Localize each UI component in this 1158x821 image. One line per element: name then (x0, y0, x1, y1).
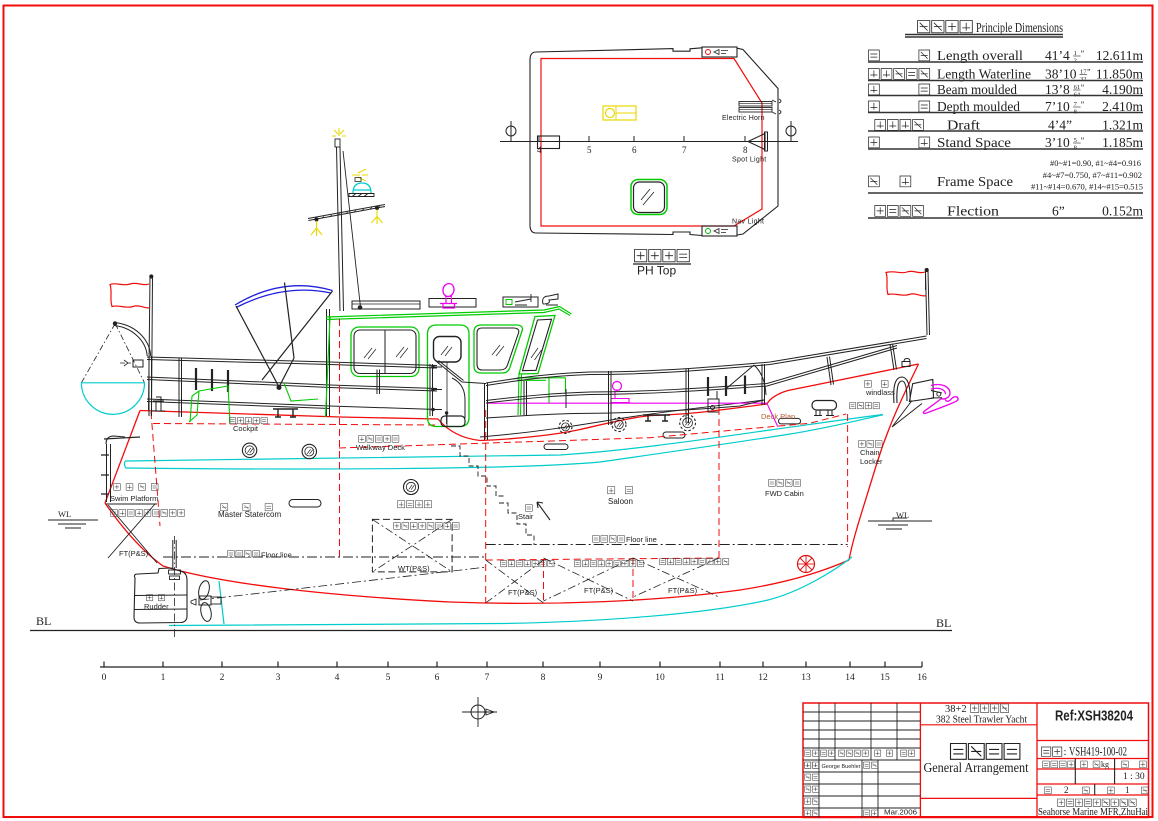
svg-text:Electric Horn: Electric Horn (722, 115, 765, 122)
svg-text:Ref:XSH38204: Ref:XSH38204 (1055, 709, 1133, 725)
svg-text:6: 6 (435, 673, 440, 683)
svg-text:Cockpit: Cockpit (233, 424, 259, 433)
svg-text:Floor line: Floor line (626, 535, 657, 544)
svg-text:8: 8 (1074, 145, 1077, 152)
svg-text:4: 4 (335, 673, 340, 683)
svg-text:”: ” (1081, 100, 1085, 109)
svg-text:#4~#7=0.750, #7~#11=0.902: #4~#7=0.750, #7~#11=0.902 (1043, 170, 1142, 180)
svg-text:2: 2 (1064, 785, 1069, 795)
svg-text:1.185m: 1.185m (1102, 135, 1143, 150)
svg-text:FWD Cabin: FWD Cabin (765, 489, 804, 498)
svg-text:FT(P&S): FT(P&S) (508, 588, 538, 597)
svg-text:WT(P&S): WT(P&S) (398, 564, 430, 573)
svg-text:Master Statercom: Master Statercom (218, 510, 281, 519)
svg-text:15: 15 (880, 673, 890, 683)
svg-text:1: 1 (161, 673, 166, 683)
svg-text:1: 1 (1125, 785, 1130, 795)
svg-text:Length Waterline: Length Waterline (937, 67, 1031, 82)
svg-text:3’10: 3’10 (1045, 135, 1070, 150)
svg-text:3: 3 (276, 673, 281, 683)
svg-text:Nav Light: Nav Light (732, 219, 764, 226)
svg-text:382 Steel Trawler Yacht: 382 Steel Trawler Yacht (936, 714, 1027, 726)
svg-text::: : (1064, 746, 1067, 758)
svg-text:BL: BL (36, 614, 51, 628)
svg-text:7: 7 (485, 673, 490, 683)
svg-text:11.850m: 11.850m (1096, 67, 1144, 82)
svg-text:BL: BL (936, 616, 951, 630)
svg-text:5: 5 (587, 145, 592, 155)
svg-text:0.152m: 0.152m (1102, 204, 1143, 219)
svg-text:”: ” (1081, 136, 1085, 145)
svg-text:Stand Space: Stand Space (937, 135, 1011, 150)
svg-text:Flection: Flection (947, 204, 999, 219)
svg-text:”: ” (1081, 83, 1085, 92)
svg-text:38’10: 38’10 (1045, 67, 1077, 82)
svg-text:10: 10 (655, 673, 665, 683)
svg-text:Walkway Deck: Walkway Deck (356, 443, 405, 452)
svg-text:FT(P&S): FT(P&S) (584, 586, 614, 595)
svg-text:windlass: windlass (865, 388, 895, 397)
svg-text:Floor line: Floor line (261, 551, 292, 560)
svg-text:2: 2 (220, 673, 225, 683)
svg-text:#0~#1=0.90, #1~#4=0.916: #0~#1=0.90, #1~#4=0.916 (1050, 158, 1141, 168)
svg-text:2: 2 (1074, 58, 1077, 65)
svg-text:Seahorse Marine MFR,ZhuHai: Seahorse Marine MFR,ZhuHai (1038, 806, 1148, 818)
svg-text:Swim Platform: Swim Platform (110, 494, 158, 503)
svg-text:Saloon: Saloon (608, 497, 633, 506)
svg-text:5: 5 (386, 673, 391, 683)
svg-text:FT(P&S): FT(P&S) (668, 586, 698, 595)
svg-text:Chain: Chain (860, 448, 880, 457)
svg-text:13: 13 (801, 673, 811, 683)
svg-text:Frame Space: Frame Space (937, 174, 1013, 189)
svg-text:32: 32 (1080, 76, 1087, 83)
svg-text:16: 16 (917, 673, 927, 683)
svg-text:”: ” (1087, 68, 1091, 77)
svg-text:Length overall: Length overall (937, 48, 1023, 63)
svg-text:8: 8 (541, 673, 546, 683)
svg-text:Principle Dimensions: Principle Dimensions (976, 20, 1063, 35)
svg-text:General Arrangement: General Arrangement (924, 761, 1029, 776)
svg-text:Rudder: Rudder (144, 602, 169, 611)
svg-text:41’4: 41’4 (1045, 48, 1070, 63)
svg-text:Locker: Locker (860, 457, 883, 466)
svg-text:6”: 6” (1052, 204, 1065, 219)
svg-text:PH Top: PH Top (637, 264, 676, 278)
svg-text:8: 8 (743, 145, 748, 155)
svg-text:Stair: Stair (518, 512, 534, 521)
svg-text:George Buehler: George Buehler (822, 764, 861, 770)
svg-text:11: 11 (715, 673, 724, 683)
svg-text:0: 0 (102, 673, 107, 683)
svg-text:WL: WL (896, 510, 909, 520)
svg-text:12: 12 (758, 673, 768, 683)
svg-text:12.611m: 12.611m (1096, 48, 1144, 63)
svg-text:Spot Light: Spot Light (732, 157, 767, 164)
svg-text:1 : 30: 1 : 30 (1123, 772, 1145, 782)
svg-text:”: ” (1081, 49, 1085, 58)
svg-text:7: 7 (682, 145, 687, 155)
svg-text:#11~#14=0.670, #14~#15=0.515: #11~#14=0.670, #14~#15=0.515 (1031, 182, 1143, 192)
svg-text:14: 14 (845, 673, 855, 683)
svg-text:Deck Plan: Deck Plan (761, 412, 795, 421)
svg-text:9: 9 (598, 673, 603, 683)
svg-text:Mar.2006: Mar.2006 (884, 810, 917, 817)
svg-text:kg: kg (1101, 760, 1109, 769)
svg-text:6: 6 (632, 145, 637, 155)
svg-text:FT(P&S): FT(P&S) (119, 549, 149, 558)
svg-text:WL: WL (58, 509, 71, 519)
svg-text:VSH419-100-02: VSH419-100-02 (1069, 745, 1127, 759)
